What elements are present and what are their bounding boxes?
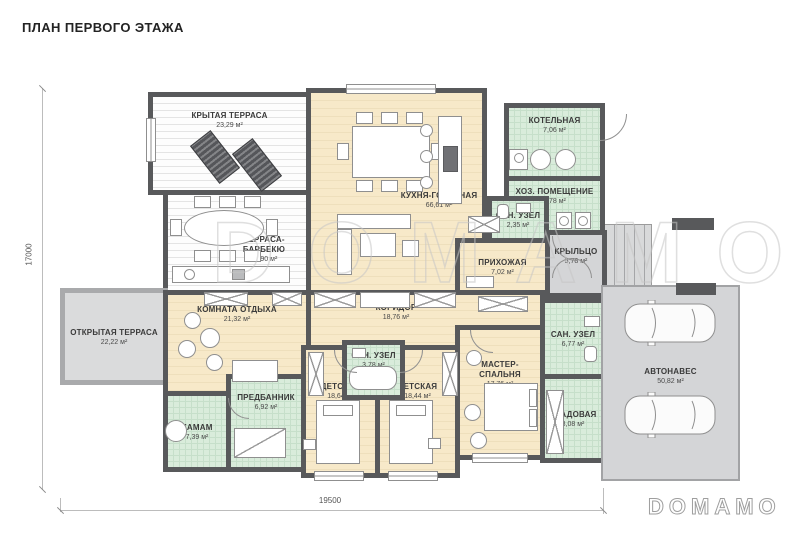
toilet [584,346,597,362]
bbq-chair [244,196,261,208]
bench [234,428,286,458]
room-area: 23,29 м² [153,122,306,129]
cooktop [443,146,458,172]
room-area: 50,82 м² [603,378,738,385]
dining-chair [381,112,398,124]
lounge-sofa [232,360,278,382]
car-top-view-icon [622,300,718,346]
armchair [470,432,487,449]
armchair [466,350,482,366]
dining-chair [406,112,423,124]
room-wc-master: САН. УЗЕЛ 6,77 м² [540,298,606,379]
page-title: ПЛАН ПЕРВОГО ЭТАЖА [22,20,184,35]
room-covered-terrace: КРЫТАЯ ТЕРРАСА 23,29 м² [148,92,311,195]
washbasin [584,316,600,327]
room-open-terrace: ОТКРЫТАЯ ТЕРРАСА 22,22 м² [60,288,168,385]
armchair [402,240,419,257]
window [146,118,156,162]
dimension-width-label: 19500 [300,496,360,505]
chair [303,439,316,450]
window [346,84,436,94]
window [472,453,528,463]
dimension-line-vertical [42,88,43,490]
shelving [546,390,564,454]
washer [575,212,591,229]
dining-chair [356,112,373,124]
room-name: КОТЕЛЬНАЯ [509,116,600,126]
lounge-chair [206,354,223,371]
dining-chair [381,180,398,192]
pillow [323,405,353,416]
shoe-bench [466,276,494,288]
washer-drum-icon [559,216,569,226]
door-arc-icon [600,114,627,141]
dining-table [352,126,430,178]
window [388,471,438,481]
room-name: КРЫТАЯ ТЕРРАСА [153,111,306,121]
armchair [464,404,481,421]
hamam-table [165,420,187,442]
wardrobe [314,292,356,308]
bar-stool [420,150,433,163]
room-name: АВТОНАВЕС [603,367,738,377]
washer [556,212,572,229]
room-area: 7,06 м² [509,127,600,134]
wardrobe [468,216,500,233]
bbq-chair [266,219,278,236]
wardrobe [204,292,248,306]
room-name: ОТКРЫТАЯ ТЕРРАСА [65,328,163,338]
washer [509,149,528,170]
room-name: ПРИХОЖАЯ [460,258,545,268]
room-name: САН. УЗЕЛ [546,330,600,340]
room-area: 22,22 м² [65,339,163,346]
bbq-chair [194,196,211,208]
bbq-chair [219,250,236,262]
wardrobe [414,292,456,308]
carport-beam [672,218,714,230]
boiler-tank [555,149,576,170]
lounge-chair [178,340,196,358]
bbq-chair [244,250,261,262]
bbq-chair [219,196,236,208]
bbq-table [184,210,264,246]
console-shelf [360,292,410,308]
bbq-chair [194,250,211,262]
dining-chair [337,143,349,160]
washer-drum-icon [578,216,588,226]
bar-stool [420,124,433,137]
washer-drum-icon [514,153,524,163]
room-area: 27,90 м² [224,256,304,263]
bar-stool [420,176,433,189]
room-area: 7,02 м² [460,269,545,276]
dining-chair [356,180,373,192]
sink [184,269,195,280]
lounge-table [200,328,220,348]
coffee-table [360,233,396,257]
dimension-line-horizontal [60,510,603,511]
pillow [396,405,426,416]
wardrobe [442,352,458,396]
wardrobe [478,296,528,312]
bbq-chair [170,219,182,236]
wardrobe [272,292,302,306]
sofa [337,214,411,229]
sofa [337,229,352,275]
brand-logo: DOMAMO [648,494,781,520]
floor-plan: ПЛАН ПЕРВОГО ЭТАЖА КРЫТАЯ ТЕРРАСА 23,29 … [0,0,800,533]
washbasin [516,203,531,213]
carport-beam [676,283,716,295]
lounge-chair [184,312,201,329]
grill [232,269,245,280]
chair [428,438,441,449]
dimension-height-label: 17000 [25,243,34,265]
window [314,471,364,481]
room-area: 18,76 м² [341,314,451,321]
pillow [529,409,537,427]
boiler-tank [530,149,551,170]
pillow [529,389,537,407]
car-top-view-icon [622,392,718,438]
wardrobe [308,352,324,396]
